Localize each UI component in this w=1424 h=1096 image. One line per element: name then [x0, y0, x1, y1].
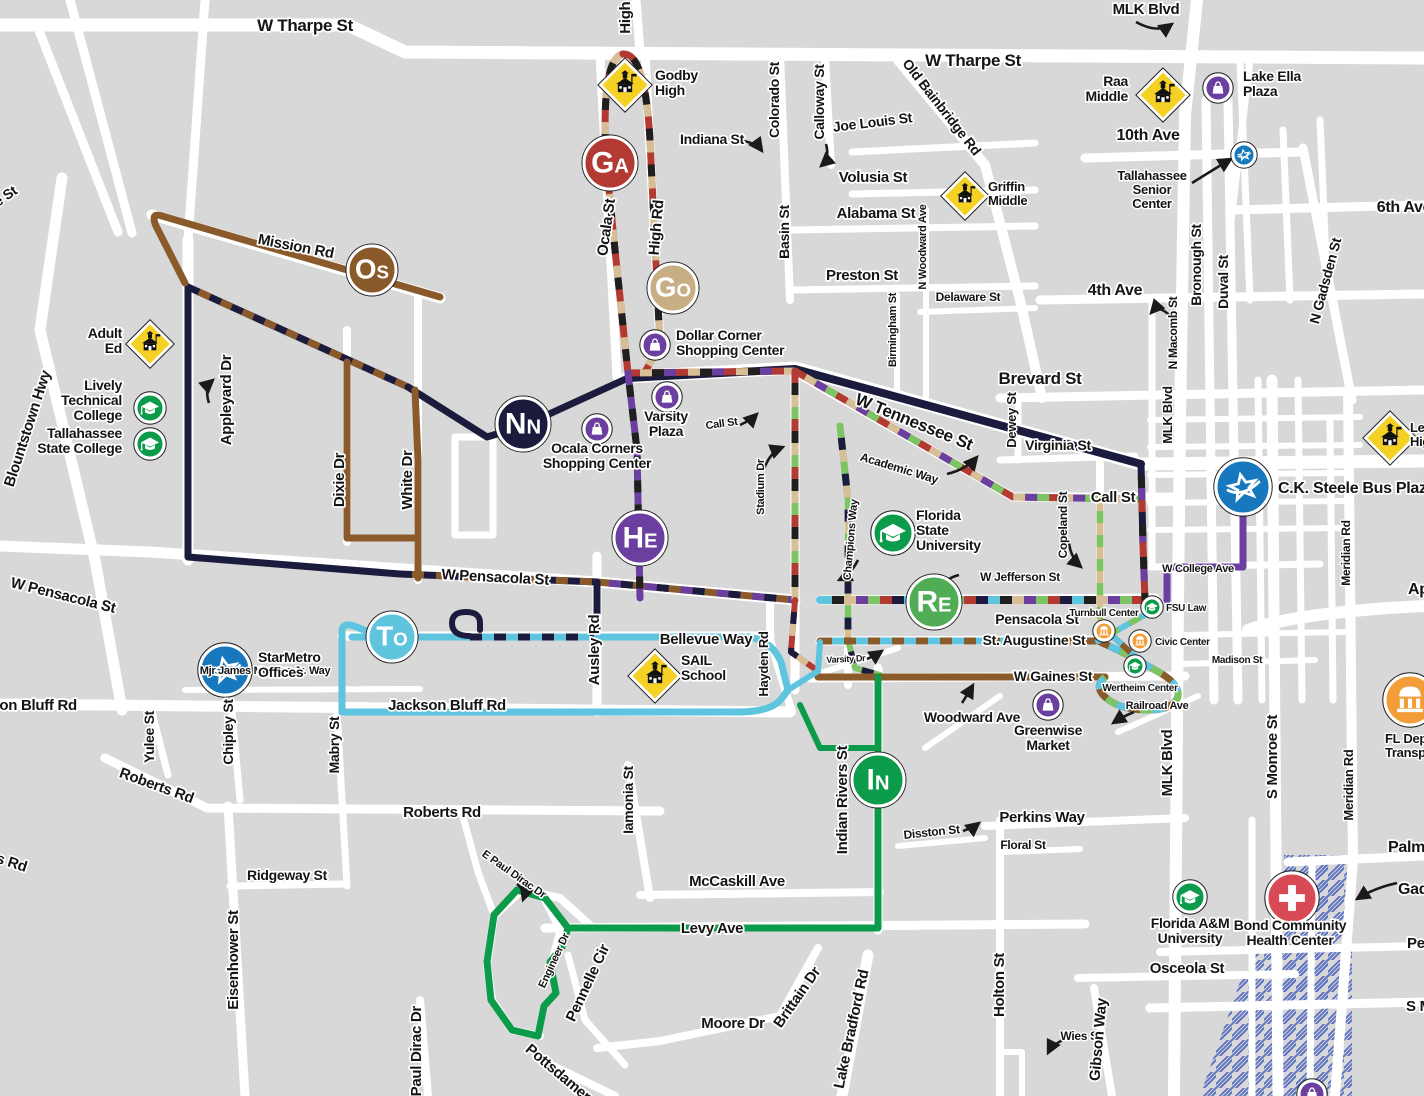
- map-label: Dewey St: [1004, 391, 1019, 447]
- map-label: Indian Rivers St: [834, 745, 851, 854]
- street: [230, 884, 345, 886]
- street: [1150, 417, 1360, 420]
- route-badge-GO: GO: [647, 262, 699, 314]
- map-label: TallahasseeState College: [37, 425, 122, 456]
- street: [1330, 420, 1333, 700]
- street: [1150, 445, 1360, 447]
- map-label: E Paul Dirac Dr: [408, 1006, 425, 1096]
- map-label: Meridian Rd: [1339, 520, 1353, 585]
- map-label: Perkins Way: [999, 809, 1085, 826]
- transit-icon: [1231, 142, 1257, 168]
- map-label: Virginia St: [1025, 437, 1091, 453]
- map-label: Basin St: [776, 205, 792, 259]
- map-label: 4th Ave: [1088, 282, 1143, 299]
- street: [920, 308, 1035, 312]
- map-label: W Tharpe St: [925, 51, 1022, 70]
- map-label: Roberts Rd: [403, 804, 481, 821]
- street: [1258, 380, 1262, 700]
- map-label: Delaware St: [936, 290, 1001, 304]
- map-label: Duval St: [1215, 255, 1231, 309]
- map-label: Madison St: [1212, 655, 1263, 666]
- route-badge-HE: HE: [612, 510, 668, 566]
- map-label: Moore Dr: [701, 1015, 765, 1032]
- street: [636, 0, 640, 52]
- street: [1150, 528, 1345, 530]
- map-label: Alabama St: [837, 205, 916, 222]
- map-label: White Dr: [399, 450, 416, 510]
- route-badge-TO: TO: [366, 611, 418, 663]
- map-label: Mabry St: [326, 716, 342, 773]
- map-label: Brevard St: [999, 369, 1083, 388]
- map-label: Varsity Dr: [826, 653, 866, 665]
- map-label: Apalachee Pkwy: [1408, 581, 1424, 598]
- route-badge-IN: IN: [850, 752, 906, 808]
- map-label: 6th Ave: [1377, 199, 1424, 216]
- college-icon: [871, 511, 915, 555]
- map-label: Holton St: [991, 953, 1008, 1017]
- street: [1150, 1002, 1424, 1008]
- map-label: Gadsden: [1398, 881, 1424, 898]
- map-label: High Rd: [617, 0, 634, 34]
- map-label: S Monroe St: [1264, 715, 1281, 800]
- government-icon: [1093, 620, 1115, 642]
- street: [1298, 380, 1302, 700]
- map-label: Indiana St: [680, 131, 745, 147]
- street: [640, 892, 880, 895]
- map-label: FSU Law: [1166, 603, 1207, 614]
- route-badge-OS: OS: [346, 244, 398, 296]
- map-label: LeonHigh: [1410, 420, 1424, 449]
- government-icon: [1129, 630, 1151, 652]
- map-label: Chipley St: [220, 699, 236, 765]
- map-label: Iamonia St: [620, 765, 636, 833]
- college-icon: [134, 392, 166, 424]
- map-label: Stadium Dr: [755, 458, 767, 515]
- map-label: Ridgeway St: [247, 867, 328, 883]
- map-label: FL DeptTransportation: [1385, 731, 1424, 760]
- map-label: GriffinMiddle: [988, 179, 1027, 208]
- college-icon: [1141, 596, 1163, 618]
- map-label: VarsityPlaza: [644, 408, 688, 439]
- map-label: Civic Center: [1155, 637, 1210, 648]
- map-label: Woodward Ave: [924, 709, 1021, 725]
- map-label: Yulee St: [141, 710, 157, 763]
- map-label: Florida A&MUniversity: [1151, 915, 1230, 946]
- map-label: MLK Blvd: [1159, 729, 1176, 796]
- street: [1288, 856, 1424, 862]
- transit-icon: [1214, 458, 1272, 516]
- map-label: MLK Blvd: [1113, 1, 1180, 18]
- map-label: N Woodward Ave: [917, 204, 929, 289]
- map-label: Meridian Rd: [1341, 749, 1356, 820]
- street: [790, 226, 1035, 230]
- shopping-icon: [1203, 73, 1233, 103]
- map-label: McCaskill Ave: [689, 873, 785, 890]
- map-label: W Tharpe St: [257, 16, 354, 35]
- map-label: C.K. Steele Bus Plaza: [1278, 480, 1424, 497]
- map-label: Jackson Bluff Rd: [388, 697, 506, 714]
- map-label: Copeland St: [1056, 491, 1070, 558]
- map-label: Jackson Bluff Rd: [0, 697, 77, 714]
- map-label: Ocala CornersShopping Center: [543, 440, 652, 471]
- map-label: Bond CommunityHealth Center: [1234, 917, 1347, 948]
- map-label: N Macomb St: [1166, 296, 1180, 369]
- college-icon: [1124, 655, 1146, 677]
- map-label: Call St: [1091, 489, 1136, 506]
- map-label: Osceola St: [1150, 960, 1225, 977]
- transit-map: GAGOOSNNHETOREINW Tharpe StW Tharpe StML…: [0, 0, 1424, 1096]
- map-label: Bronough St: [1188, 224, 1204, 306]
- map-label: S Magnolia Dr: [1406, 998, 1424, 1015]
- map-label: 10th Ave: [1116, 127, 1180, 144]
- route-badge-RE: RE: [906, 574, 962, 630]
- map-label: Eisenhower St: [225, 910, 242, 1010]
- college-icon: [134, 428, 166, 460]
- map-label: Floral St: [1000, 838, 1046, 852]
- map-label: Railroad Ave: [1126, 700, 1189, 712]
- map-label: W Gaines St: [1014, 668, 1093, 684]
- map-label: Preston St: [826, 267, 898, 284]
- street: [1185, 632, 1345, 635]
- shopping-icon: [1033, 690, 1063, 720]
- map-label: Appleyard Dr: [218, 354, 235, 445]
- map-label: Perkins: [1407, 935, 1424, 952]
- map-label: Calloway St: [811, 64, 827, 140]
- map-label: W College Ave: [1162, 563, 1234, 575]
- map-label: Palmer Ave: [1388, 839, 1424, 856]
- map-label: Birmingham St: [887, 292, 899, 367]
- shopping-icon: [640, 330, 670, 360]
- route-badge-NN: NN: [495, 396, 551, 452]
- map-label: W Jefferson St: [980, 570, 1060, 584]
- street: [1085, 152, 1300, 158]
- map-label: St. Augustine St: [983, 632, 1086, 648]
- route-badge-GA: GA: [582, 135, 638, 191]
- college-icon: [1173, 880, 1207, 914]
- map-label: Volusia St: [839, 169, 908, 186]
- map-label: Wertheim Center: [1102, 683, 1178, 694]
- map-label: Turnbull Center: [1069, 608, 1139, 619]
- map-label: Pensacola St: [995, 611, 1079, 627]
- map-label: Ausley Rd: [586, 615, 603, 686]
- map-label: MLK Blvd: [1160, 386, 1175, 444]
- map-label: Levy Ave: [681, 920, 743, 937]
- map-label: Colorado St: [766, 61, 782, 138]
- map-label: Bellevue Way: [660, 631, 754, 648]
- map-label: Dixie Dr: [331, 452, 348, 507]
- map-canvas: GAGOOSNNHETOREINW Tharpe StW Tharpe StML…: [0, 0, 1424, 1096]
- map-label: Hayden Rd: [756, 631, 771, 697]
